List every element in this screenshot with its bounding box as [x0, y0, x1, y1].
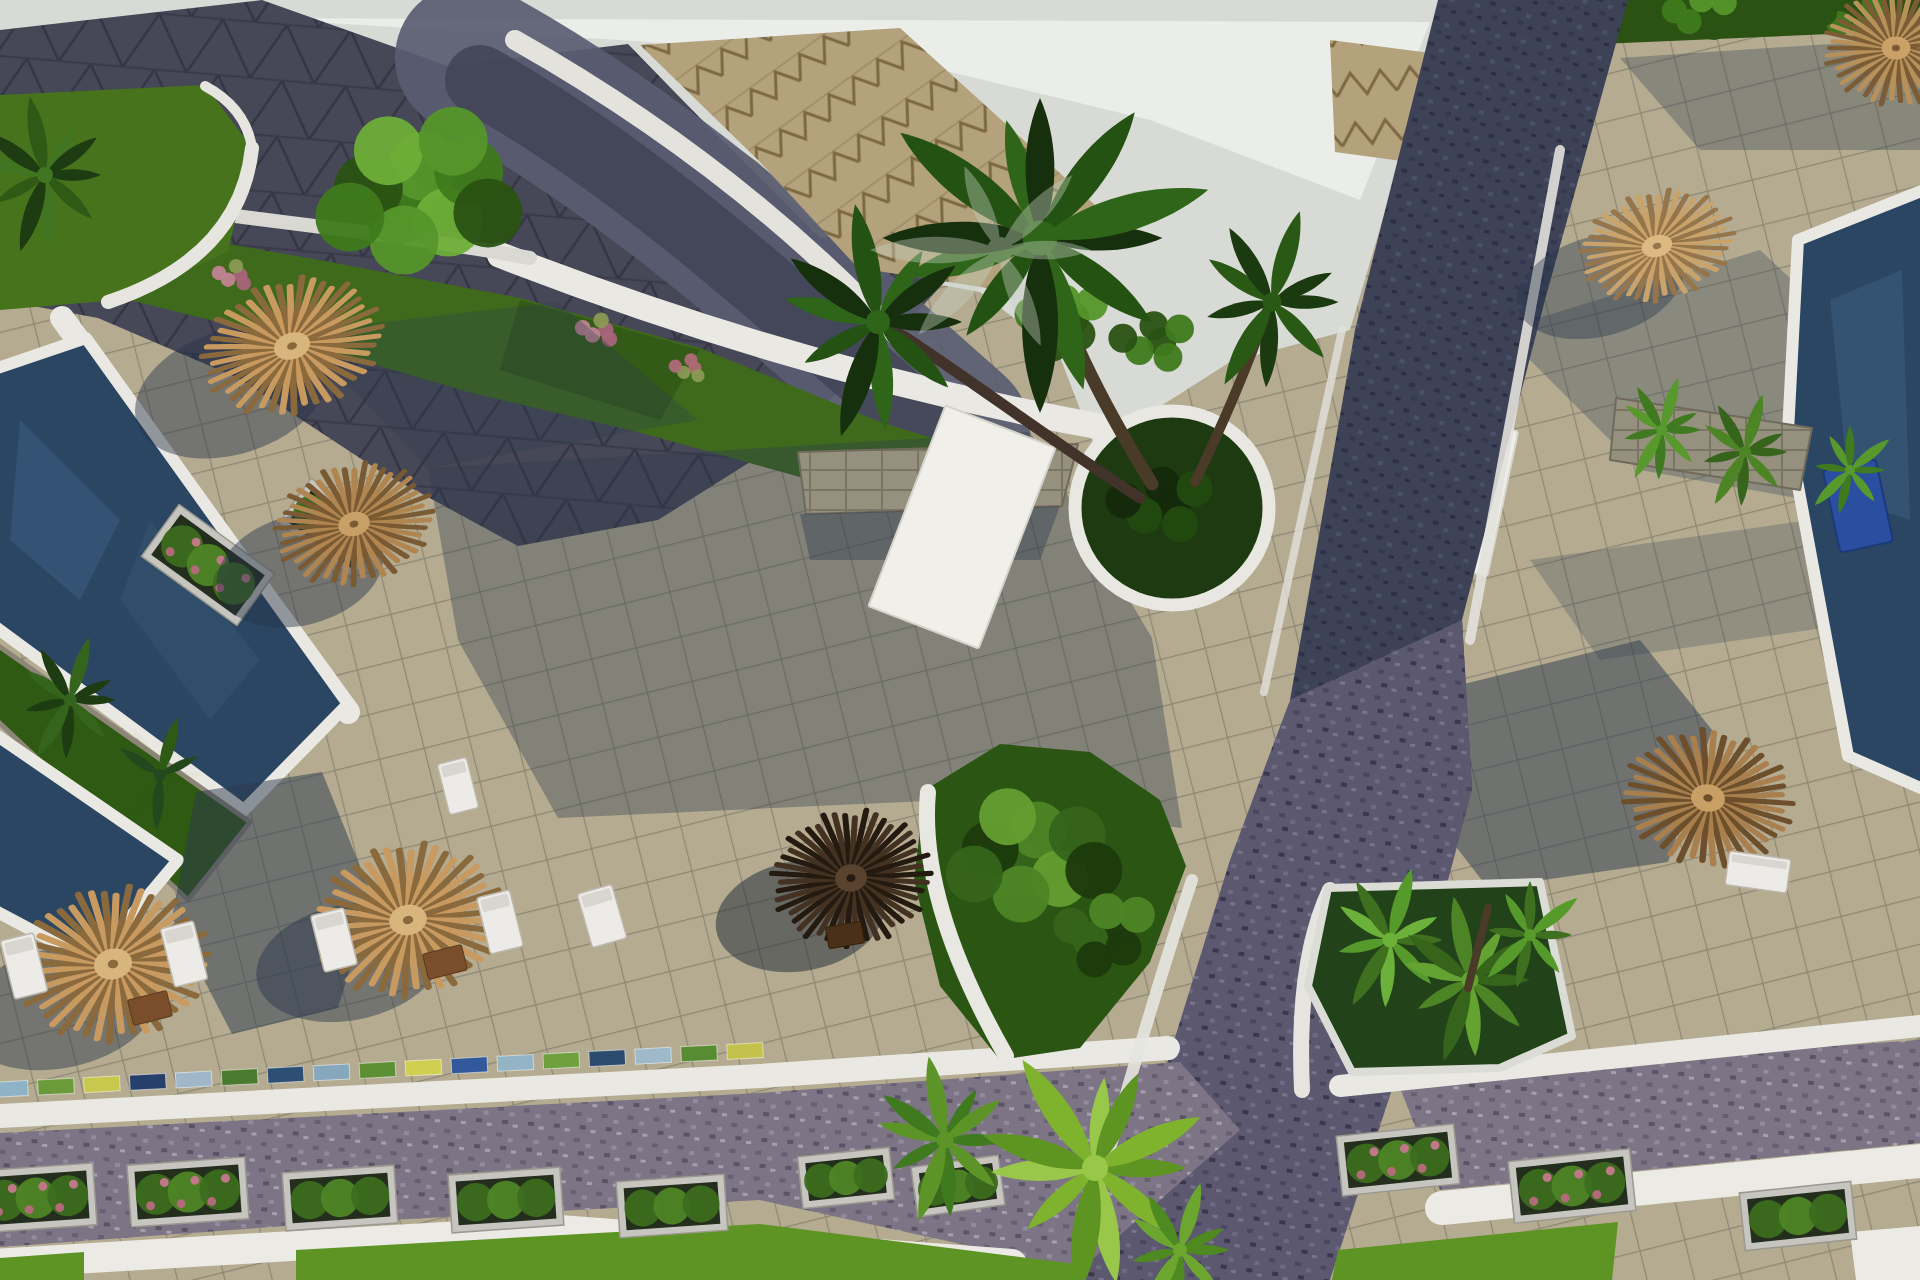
street-planter	[282, 1165, 398, 1231]
street-planter	[1739, 1181, 1856, 1250]
street-planter	[1336, 1124, 1460, 1196]
street-planter	[127, 1157, 249, 1227]
street-planter	[616, 1174, 728, 1237]
sidewalk-corner	[1850, 1226, 1920, 1280]
resort-aerial-scene	[0, 0, 1920, 1280]
resort-aerial-render	[0, 0, 1920, 1280]
street-planter	[798, 1147, 895, 1208]
street-planter	[1508, 1149, 1636, 1223]
street-planter	[448, 1167, 564, 1233]
street-planter	[0, 1163, 97, 1233]
